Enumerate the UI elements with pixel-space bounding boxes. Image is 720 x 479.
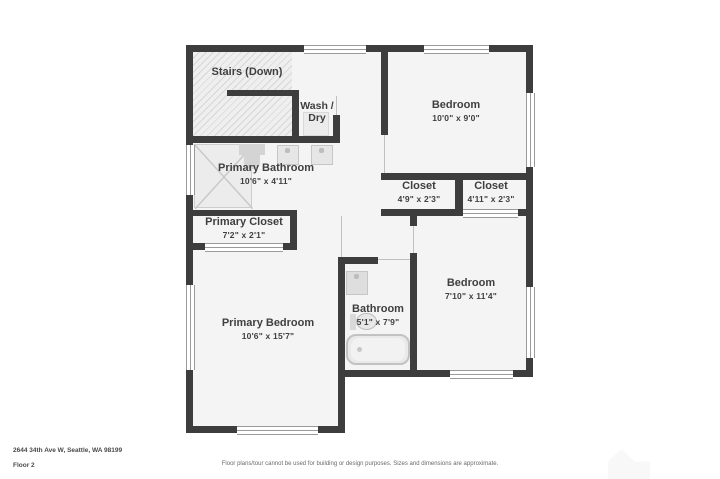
room-label-bathroom: Bathroom 5'1" x 7'9" [352, 303, 404, 328]
room-dimensions: 5'1" x 7'9" [352, 316, 404, 329]
wall [410, 216, 417, 226]
room-label-wash-dry: Wash / Dry [294, 100, 340, 124]
window [186, 285, 195, 370]
room-label-primary-bathroom: Primary Bathroom 10'6" x 4'11" [218, 162, 314, 187]
sink-icon [311, 145, 333, 165]
room-name: Closet [398, 180, 441, 193]
wall [410, 253, 417, 370]
window [526, 93, 535, 167]
room-name: Bedroom [445, 277, 497, 290]
closet-door-opening [205, 243, 283, 252]
room-label-stairs: Stairs (Down) [212, 66, 283, 79]
wall [186, 243, 205, 250]
room-dimensions: 10'6" x 15'7" [222, 330, 314, 343]
room-dimensions: 4'11" x 2'3" [467, 193, 514, 206]
window [424, 45, 489, 54]
room-label-primary-bedroom: Primary Bedroom 10'6" x 15'7" [222, 317, 314, 342]
wall [283, 243, 297, 250]
door-leaf [341, 216, 342, 257]
wall [186, 45, 193, 433]
room-dimensions: 4'9" x 2'3" [398, 193, 441, 206]
room-label-bedroom-top: Bedroom 10'0" x 9'0" [432, 99, 480, 124]
window [237, 426, 318, 435]
toilet-icon [239, 144, 265, 155]
wall [381, 52, 388, 135]
wall [186, 136, 340, 143]
floorplan-page: Stairs (Down) Wash / Dry Primary Bathroo… [0, 0, 720, 479]
door-leaf [378, 259, 410, 260]
address-text: 2644 34th Ave W, Seattle, WA 98199 [13, 447, 122, 454]
window [304, 45, 366, 54]
wall [518, 209, 526, 216]
sink-icon [346, 271, 368, 295]
closet-door-opening [463, 209, 518, 218]
bathtub-drain-icon [357, 347, 362, 352]
room-name: Primary Closet [205, 216, 283, 229]
room-name: Closet [467, 180, 514, 193]
window [186, 145, 195, 195]
wall [381, 173, 526, 180]
room-name: Bathroom [352, 303, 404, 316]
room-name: Primary Bathroom [218, 162, 314, 175]
floor-plan: Stairs (Down) Wash / Dry Primary Bathroo… [0, 0, 720, 479]
room-name: Wash / Dry [294, 100, 340, 124]
room-dimensions: 7'10" x 11'4" [445, 290, 497, 303]
wall [381, 209, 455, 216]
room-label-closet-right: Closet 4'11" x 2'3" [467, 180, 514, 205]
wall [455, 180, 463, 216]
room-dimensions: 7'2" x 2'1" [205, 229, 283, 242]
room-label-primary-closet: Primary Closet 7'2" x 2'1" [205, 216, 283, 241]
room-name: Stairs (Down) [212, 66, 283, 79]
wall [338, 257, 345, 432]
door-leaf [413, 226, 414, 253]
window [526, 287, 535, 358]
room-dimensions: 10'0" x 9'0" [432, 112, 480, 125]
plan-interior-lower [193, 370, 345, 426]
window [450, 370, 513, 379]
room-dimensions: 10'6" x 4'11" [218, 175, 314, 188]
room-label-bedroom-bottom: Bedroom 7'10" x 11'4" [445, 277, 497, 302]
door-leaf [384, 135, 385, 173]
room-name: Primary Bedroom [222, 317, 314, 330]
room-name: Bedroom [432, 99, 480, 112]
wall [227, 90, 299, 96]
room-label-closet-left: Closet 4'9" x 2'3" [398, 180, 441, 205]
